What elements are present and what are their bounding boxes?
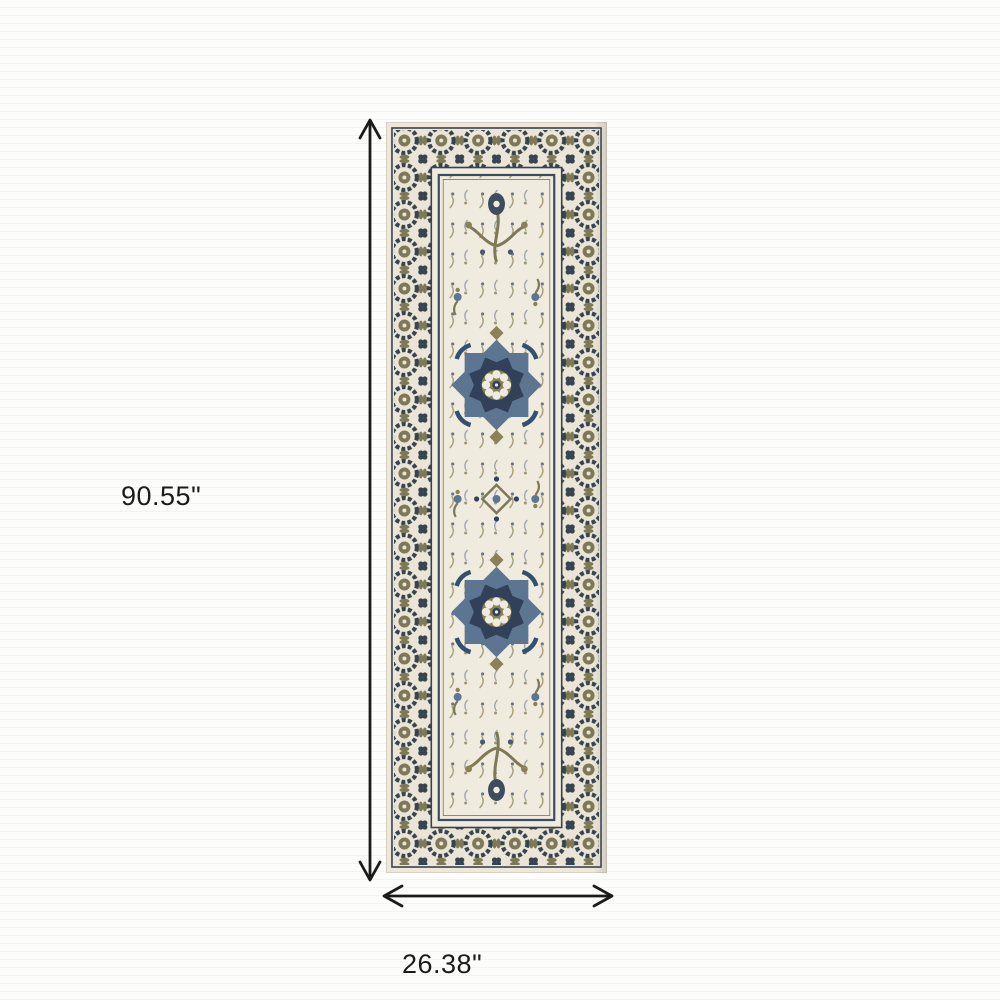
product-dimension-diagram: 90.55" 26.38" [0, 0, 1000, 1000]
width-dimension-arrow [384, 886, 612, 906]
width-dimension-label: 26.38" [402, 949, 482, 980]
rug-image [386, 122, 607, 873]
height-dimension-label: 90.55" [121, 481, 201, 512]
height-dimension-arrow [360, 120, 380, 880]
